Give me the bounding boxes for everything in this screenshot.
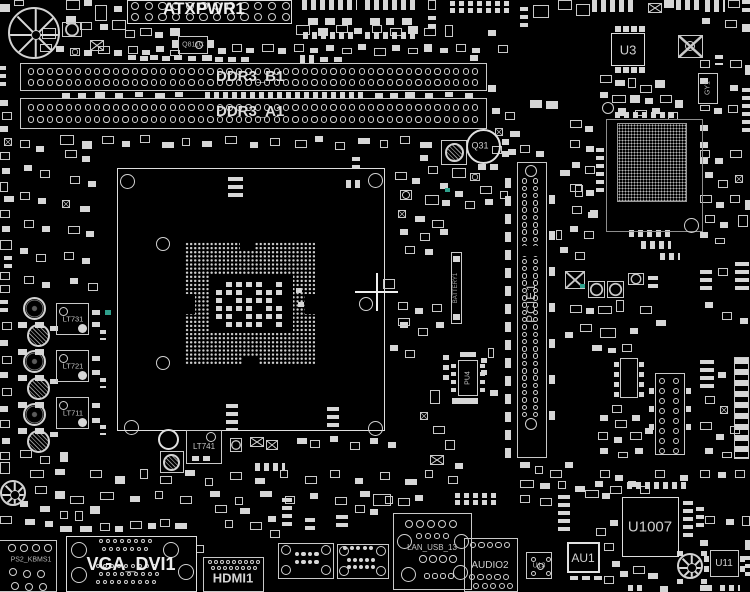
coil-br[interactable] (677, 553, 703, 579)
part (488, 85, 496, 92)
part (722, 452, 732, 458)
pin-hole (103, 79, 109, 85)
part (114, 6, 122, 12)
pin-hole (522, 222, 528, 228)
part (86, 231, 94, 237)
part (102, 136, 114, 144)
chip-pad (639, 67, 645, 73)
chip-pad (639, 372, 644, 377)
part (615, 112, 675, 118)
part (602, 493, 610, 499)
part (100, 330, 106, 340)
socket-center-pad (226, 306, 232, 311)
mount-hole (281, 565, 291, 575)
pin-hole (282, 13, 290, 21)
pin-hole (429, 555, 437, 563)
part (84, 50, 92, 56)
part (92, 322, 100, 327)
mount-hole (281, 545, 291, 555)
part (70, 48, 80, 56)
chip-pad (451, 388, 456, 392)
pin-hole (141, 104, 147, 110)
part (20, 248, 28, 254)
socket-center-pad (226, 322, 232, 327)
part (614, 437, 622, 443)
socket-mount-hole (368, 421, 383, 436)
pin-hole (533, 273, 539, 279)
pin-hole (495, 542, 501, 548)
pin-hole (434, 533, 440, 539)
part (386, 18, 394, 25)
pin-hole (132, 68, 138, 74)
chip-pad (740, 566, 745, 572)
chip-pad (203, 456, 210, 461)
pin-hole (122, 79, 128, 85)
part (596, 148, 604, 194)
part (388, 442, 396, 448)
pin-hole (122, 68, 128, 74)
part (30, 470, 44, 478)
pin-hole (396, 79, 402, 85)
pin-hole (37, 68, 43, 74)
chip-pad (649, 388, 654, 394)
mount-hole (9, 568, 17, 576)
part (302, 0, 357, 10)
chip-pad (704, 566, 709, 572)
pin-hole (425, 116, 431, 122)
pin-hole (170, 104, 176, 110)
part (481, 358, 487, 363)
socket-center-pad (256, 298, 262, 303)
part (445, 440, 455, 450)
pin-hole (188, 79, 194, 85)
part (700, 585, 712, 591)
part (55, 491, 65, 499)
chipset-bga[interactable] (617, 123, 687, 202)
part (100, 378, 106, 388)
part (618, 452, 628, 458)
part (745, 540, 750, 550)
part (2, 226, 10, 232)
pin-hole (330, 104, 336, 110)
part (295, 140, 307, 148)
pin-hole (659, 418, 665, 424)
part (610, 520, 618, 526)
smd-pad (549, 195, 555, 204)
pin-hole (145, 2, 153, 10)
pin-hole (533, 397, 539, 403)
part (655, 80, 665, 88)
part (432, 220, 444, 228)
label-u3: U3 (620, 44, 637, 57)
part (415, 308, 423, 314)
part (700, 540, 708, 546)
socket-center-pad (276, 290, 282, 295)
part (170, 28, 180, 36)
part (0, 4, 10, 12)
pin-hole (151, 116, 157, 122)
chip-pad (639, 392, 644, 397)
pin-hole (103, 104, 109, 110)
pin-hole (472, 116, 478, 122)
part (430, 390, 440, 404)
mount-hole (321, 545, 331, 555)
part (714, 108, 722, 114)
pin-hole (302, 79, 308, 85)
pin-hole (659, 378, 665, 384)
part (255, 478, 265, 484)
part (215, 57, 223, 62)
slot-key (519, 246, 545, 256)
part (728, 105, 738, 113)
part (268, 516, 276, 522)
pin-hole (406, 116, 412, 122)
part (425, 195, 439, 205)
part (405, 350, 415, 358)
part (280, 470, 288, 478)
part (560, 247, 568, 253)
part (365, 0, 417, 10)
part (4, 256, 12, 268)
part (600, 415, 608, 421)
pin-hole (416, 533, 422, 539)
label-u1007: U1007 (628, 520, 672, 535)
label-ddr3-b1: DDR3_B1 (216, 69, 284, 84)
pin-hole (522, 229, 528, 235)
part (355, 505, 365, 513)
soic-footprint[interactable] (620, 358, 638, 398)
chip-pad (631, 26, 637, 32)
part (35, 322, 44, 328)
part (4, 196, 14, 202)
part (702, 18, 710, 24)
pin-hole (673, 388, 679, 394)
pin-hole (37, 116, 43, 122)
part (722, 312, 732, 320)
part (62, 22, 82, 37)
socket-center-pad (216, 298, 222, 303)
part (398, 318, 410, 326)
part (492, 108, 500, 114)
pin-pad (369, 546, 373, 550)
part (745, 200, 750, 210)
part (607, 281, 624, 298)
part (610, 486, 622, 494)
part (648, 276, 658, 290)
pad-ring (206, 432, 216, 442)
part (250, 142, 258, 148)
pin-hole (522, 346, 528, 352)
socket-center-pad (266, 298, 272, 303)
chip-pad (686, 406, 691, 412)
pin-hole (443, 533, 449, 539)
part (130, 496, 140, 502)
part (586, 146, 594, 152)
part (62, 200, 70, 208)
part (0, 272, 10, 280)
chip-pad (480, 380, 485, 384)
pin-hole (405, 520, 413, 528)
part (472, 48, 480, 53)
part (14, 0, 24, 6)
part (2, 356, 12, 364)
part (208, 40, 214, 48)
part (452, 168, 466, 178)
part (720, 585, 740, 591)
part (370, 438, 378, 444)
part (428, 166, 438, 174)
part (628, 78, 636, 88)
part (2, 168, 10, 174)
pin-hole (311, 79, 317, 85)
pin-hole (292, 68, 298, 74)
chip-pad (614, 382, 619, 387)
pin-hole (132, 104, 138, 110)
part (448, 476, 458, 484)
part (720, 406, 728, 414)
pin-pad (359, 558, 363, 562)
label-au1: AU1 (571, 552, 594, 564)
part (42, 226, 50, 232)
part (565, 332, 573, 338)
pin-hole (56, 79, 62, 85)
pin-hole (673, 448, 679, 454)
part (576, 4, 590, 16)
part (240, 508, 250, 514)
part (365, 32, 417, 39)
smd-pad (505, 286, 511, 296)
part (303, 32, 357, 39)
part (615, 80, 625, 86)
pin-hole (359, 104, 365, 110)
pin-pad (365, 558, 369, 562)
part (705, 516, 715, 524)
smd-pad (505, 340, 511, 350)
part (520, 145, 530, 153)
part (82, 156, 90, 162)
pin-hole (472, 79, 478, 85)
part (641, 241, 671, 249)
pin-hole (387, 79, 393, 85)
pin-hole (141, 116, 147, 122)
pin-hole (533, 368, 539, 374)
pin-hole (415, 68, 421, 74)
part (68, 226, 80, 234)
pin-hole (44, 544, 52, 552)
smd-pad (505, 394, 511, 404)
socket-center-pad (266, 290, 272, 295)
pin-hole (444, 79, 450, 85)
pin-hole (85, 116, 91, 122)
part (696, 507, 704, 527)
pin-hole (47, 79, 53, 85)
part (250, 437, 264, 447)
pin-hole (377, 68, 383, 74)
part (742, 88, 750, 134)
part (730, 150, 742, 158)
coil-ring-bl[interactable] (158, 429, 179, 450)
part (18, 322, 27, 328)
socket-center-pad (276, 306, 282, 311)
part (730, 60, 742, 68)
part (728, 0, 740, 8)
chip-pad (480, 372, 485, 376)
label-q31: Q31 (471, 142, 488, 151)
pin-hole (427, 520, 435, 528)
part (700, 470, 710, 478)
part (600, 328, 616, 338)
part (64, 252, 74, 260)
part (508, 149, 516, 155)
pin-pad (301, 552, 305, 556)
socket-center-pad (236, 290, 242, 295)
socket-center-pad (256, 314, 262, 319)
chip-pad (502, 139, 509, 145)
part (70, 176, 80, 184)
pin-hole (141, 68, 147, 74)
part (40, 170, 50, 178)
part (60, 511, 68, 519)
pin-hole (522, 324, 528, 330)
smd-pad (549, 411, 555, 420)
part (400, 229, 408, 235)
part (715, 158, 723, 164)
pin-hole (198, 104, 204, 110)
pin-hole (179, 116, 185, 122)
part (374, 48, 386, 56)
crosshair-box (383, 279, 395, 289)
chip-pad (451, 380, 456, 384)
part (125, 30, 135, 38)
part (202, 141, 212, 147)
pin-hole (673, 418, 679, 424)
pin-hole (330, 68, 336, 74)
part (270, 530, 280, 538)
part (612, 95, 626, 103)
part (705, 396, 715, 404)
pin-hole (113, 68, 119, 74)
pin-hole (377, 104, 383, 110)
part (498, 45, 508, 53)
pin-hole (141, 79, 147, 85)
part (455, 191, 463, 197)
part (664, 0, 674, 8)
pin-hole (28, 116, 34, 122)
part (520, 462, 530, 468)
pin-hole (302, 68, 308, 74)
label-audio2: AUDIO2 (471, 561, 508, 571)
pin-hole (170, 68, 176, 74)
part (630, 328, 638, 334)
chip-pad (615, 67, 621, 73)
smd-pad (505, 304, 511, 314)
test-point-pad (580, 284, 585, 288)
socket-center-pad (236, 298, 242, 303)
pad-ring (685, 41, 695, 51)
part (35, 349, 44, 355)
part (122, 141, 130, 147)
buzzer[interactable] (8, 7, 60, 59)
part (570, 305, 582, 313)
pin-hole (56, 116, 62, 122)
pin-hole (207, 79, 213, 85)
part (160, 519, 170, 527)
part (310, 440, 320, 448)
part (305, 518, 315, 534)
part (730, 85, 738, 91)
part (0, 372, 8, 378)
socket-center-pad (216, 290, 222, 295)
pin-hole (151, 79, 157, 85)
part (155, 491, 163, 499)
part (420, 142, 432, 148)
pin-hole (28, 79, 34, 85)
part (358, 138, 370, 144)
pin-hole (179, 79, 185, 85)
test-point-pad (445, 188, 450, 192)
part (66, 0, 80, 10)
pin-hole (188, 68, 194, 74)
part (648, 3, 662, 13)
round-part-bl[interactable] (0, 480, 26, 506)
part (400, 136, 410, 144)
pin-hole (368, 79, 374, 85)
part (572, 162, 580, 168)
part (436, 322, 444, 328)
part (700, 60, 710, 68)
pin-hole (311, 116, 317, 122)
label-atxpwr1: ATXPWR1 (163, 0, 245, 17)
pin-hole (424, 573, 429, 578)
pin-hole (406, 68, 412, 74)
label-lt711: LT711 (63, 409, 83, 417)
part (575, 185, 583, 197)
part (628, 585, 642, 591)
pin-hole (368, 116, 374, 122)
smd-pad (505, 448, 511, 458)
part (705, 172, 713, 178)
part (615, 420, 627, 428)
chip-pad (480, 364, 485, 368)
pin-hole (113, 116, 119, 122)
part (300, 55, 316, 63)
part (310, 493, 318, 499)
pin-hole (321, 116, 327, 122)
part (370, 509, 378, 515)
part (718, 180, 728, 188)
part (420, 412, 428, 420)
label-lan-usb-13: LAN_USB_13 (407, 544, 457, 552)
pin-hole (490, 583, 496, 589)
part (215, 505, 227, 513)
pin-hole (302, 116, 308, 122)
pin-hole (170, 79, 176, 85)
part (130, 521, 142, 529)
part (405, 479, 417, 485)
socket-center-pad (236, 306, 242, 311)
part (23, 297, 46, 320)
part (742, 24, 750, 32)
part (628, 273, 644, 285)
pin-hole (66, 68, 72, 74)
pin-hole (56, 68, 62, 74)
part (585, 490, 599, 498)
boardview-canvas[interactable]: ATXPWR1DDR3_B1DDR3_A1Q811CQ31U3GY1PCIE1B… (0, 0, 750, 592)
pin-hole (359, 79, 365, 85)
mount-hole (37, 570, 45, 578)
part (45, 521, 53, 527)
part (600, 92, 608, 98)
